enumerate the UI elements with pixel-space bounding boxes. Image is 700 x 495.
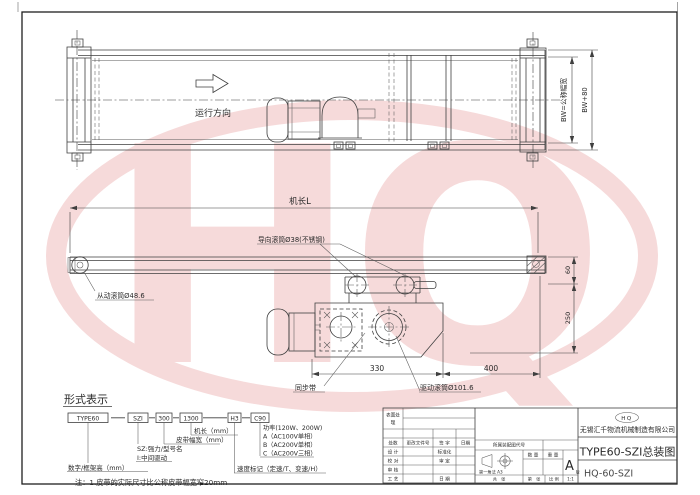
code-box-power: C90 [254, 416, 266, 423]
process-label: 工 艺 [388, 476, 399, 482]
sheet-total-label: 共 张 [493, 476, 506, 483]
direction-label: 运行方向 [195, 107, 231, 119]
revision-letter: A [565, 459, 574, 474]
label-power-c: C（AC200V三相） [263, 450, 317, 458]
code-box-szi: SZI [133, 416, 143, 423]
check-label: 校 对 [388, 457, 399, 464]
scale-label: 比 例 [549, 476, 559, 483]
drawing-title: TYPE60-SZI总装图 [579, 445, 676, 459]
label-power-b: B（AC200V单相） [263, 441, 316, 449]
guide-roller-label: 导向滚筒Ø38(不锈钢) [258, 235, 325, 244]
label-belt-width: 皮带幅宽（mm） [176, 435, 228, 444]
dim-overall-width-label: BW+80 [581, 87, 589, 113]
code-box-type: TYPE60 [76, 416, 100, 423]
rev-count-label: 处数 [388, 439, 398, 446]
drive-roller-label: 驱动滚筒Ø101.6 [420, 383, 474, 392]
label-machine-length: 机长（mm） [194, 426, 233, 435]
signature-label: 签 字 [439, 439, 450, 446]
review-label: 审 核 [388, 466, 399, 473]
projection-label: 第一角法 A3 [479, 468, 503, 475]
change-doc-label: 更改文件号 [407, 439, 430, 446]
drawing-number: HQ-60-SZI [584, 469, 633, 480]
sheet-no-label: 第 张 [528, 476, 541, 483]
engineering-drawing-sheet: HQ 运行方向 [0, 0, 700, 495]
belt-note: 注：1.皮带的实际尺寸比公称皮带幅宽窄20mm [75, 478, 227, 487]
driven-roller-label: 从动滚筒Ø48.6 [97, 291, 145, 300]
revision-sub: 版 [576, 470, 580, 475]
label-speed-mark: 速度标记（定速/T、变速/H） [237, 464, 322, 473]
quantity-label: 数 量 [528, 452, 539, 459]
sync-belt-label: 同步带 [295, 384, 316, 392]
code-box-length: 1300 [183, 416, 198, 423]
code-box-width: 300 [158, 416, 170, 423]
watermark-letters: HQ [107, 84, 597, 433]
label-power: 功率(120W、200W) [263, 424, 322, 432]
design-label: 设 计 [388, 448, 399, 455]
dim-330-label: 330 [370, 364, 385, 373]
dim-belt-width-label: BW=公称幅宽 [559, 78, 568, 122]
label-i-drive: I:中间驱动 [137, 453, 168, 462]
date2-label: 日 期 [439, 476, 450, 482]
surface-treatment-label2: 理 [391, 420, 396, 426]
label-sz: SZ:强力/型号名 [137, 444, 182, 453]
label-frame-height: 数字/框架高（mm） [68, 463, 128, 472]
format-heading: 形式表示 [64, 392, 108, 406]
code-box-speed: H3 [230, 416, 239, 423]
weight-label: 重 量 [548, 452, 559, 459]
approve-label: 审 定 [439, 457, 450, 464]
scale-value: 1:1 [567, 477, 574, 482]
dim-400-label: 400 [484, 364, 499, 373]
company-logo: HQ [616, 413, 639, 423]
dim-250-label: 250 [564, 312, 572, 324]
standardization-label: 标准化 [438, 448, 452, 455]
label-power-a: A（AC100V单相） [263, 433, 316, 441]
dim-machine-length-label: 机长L [289, 196, 311, 207]
dim-60-label: 60 [564, 266, 572, 274]
assembly-code-label: 所属装配图代号 [493, 442, 526, 449]
projection-symbol [482, 453, 513, 469]
surface-treatment-label: 表面处 [386, 412, 400, 419]
company-logo-letters: HQ [621, 416, 632, 422]
company-watermark: HQ [56, 84, 648, 433]
date-label: 日期 [461, 440, 471, 446]
company-name: 无锡汇千物流机械制造有限公司 [580, 425, 675, 434]
